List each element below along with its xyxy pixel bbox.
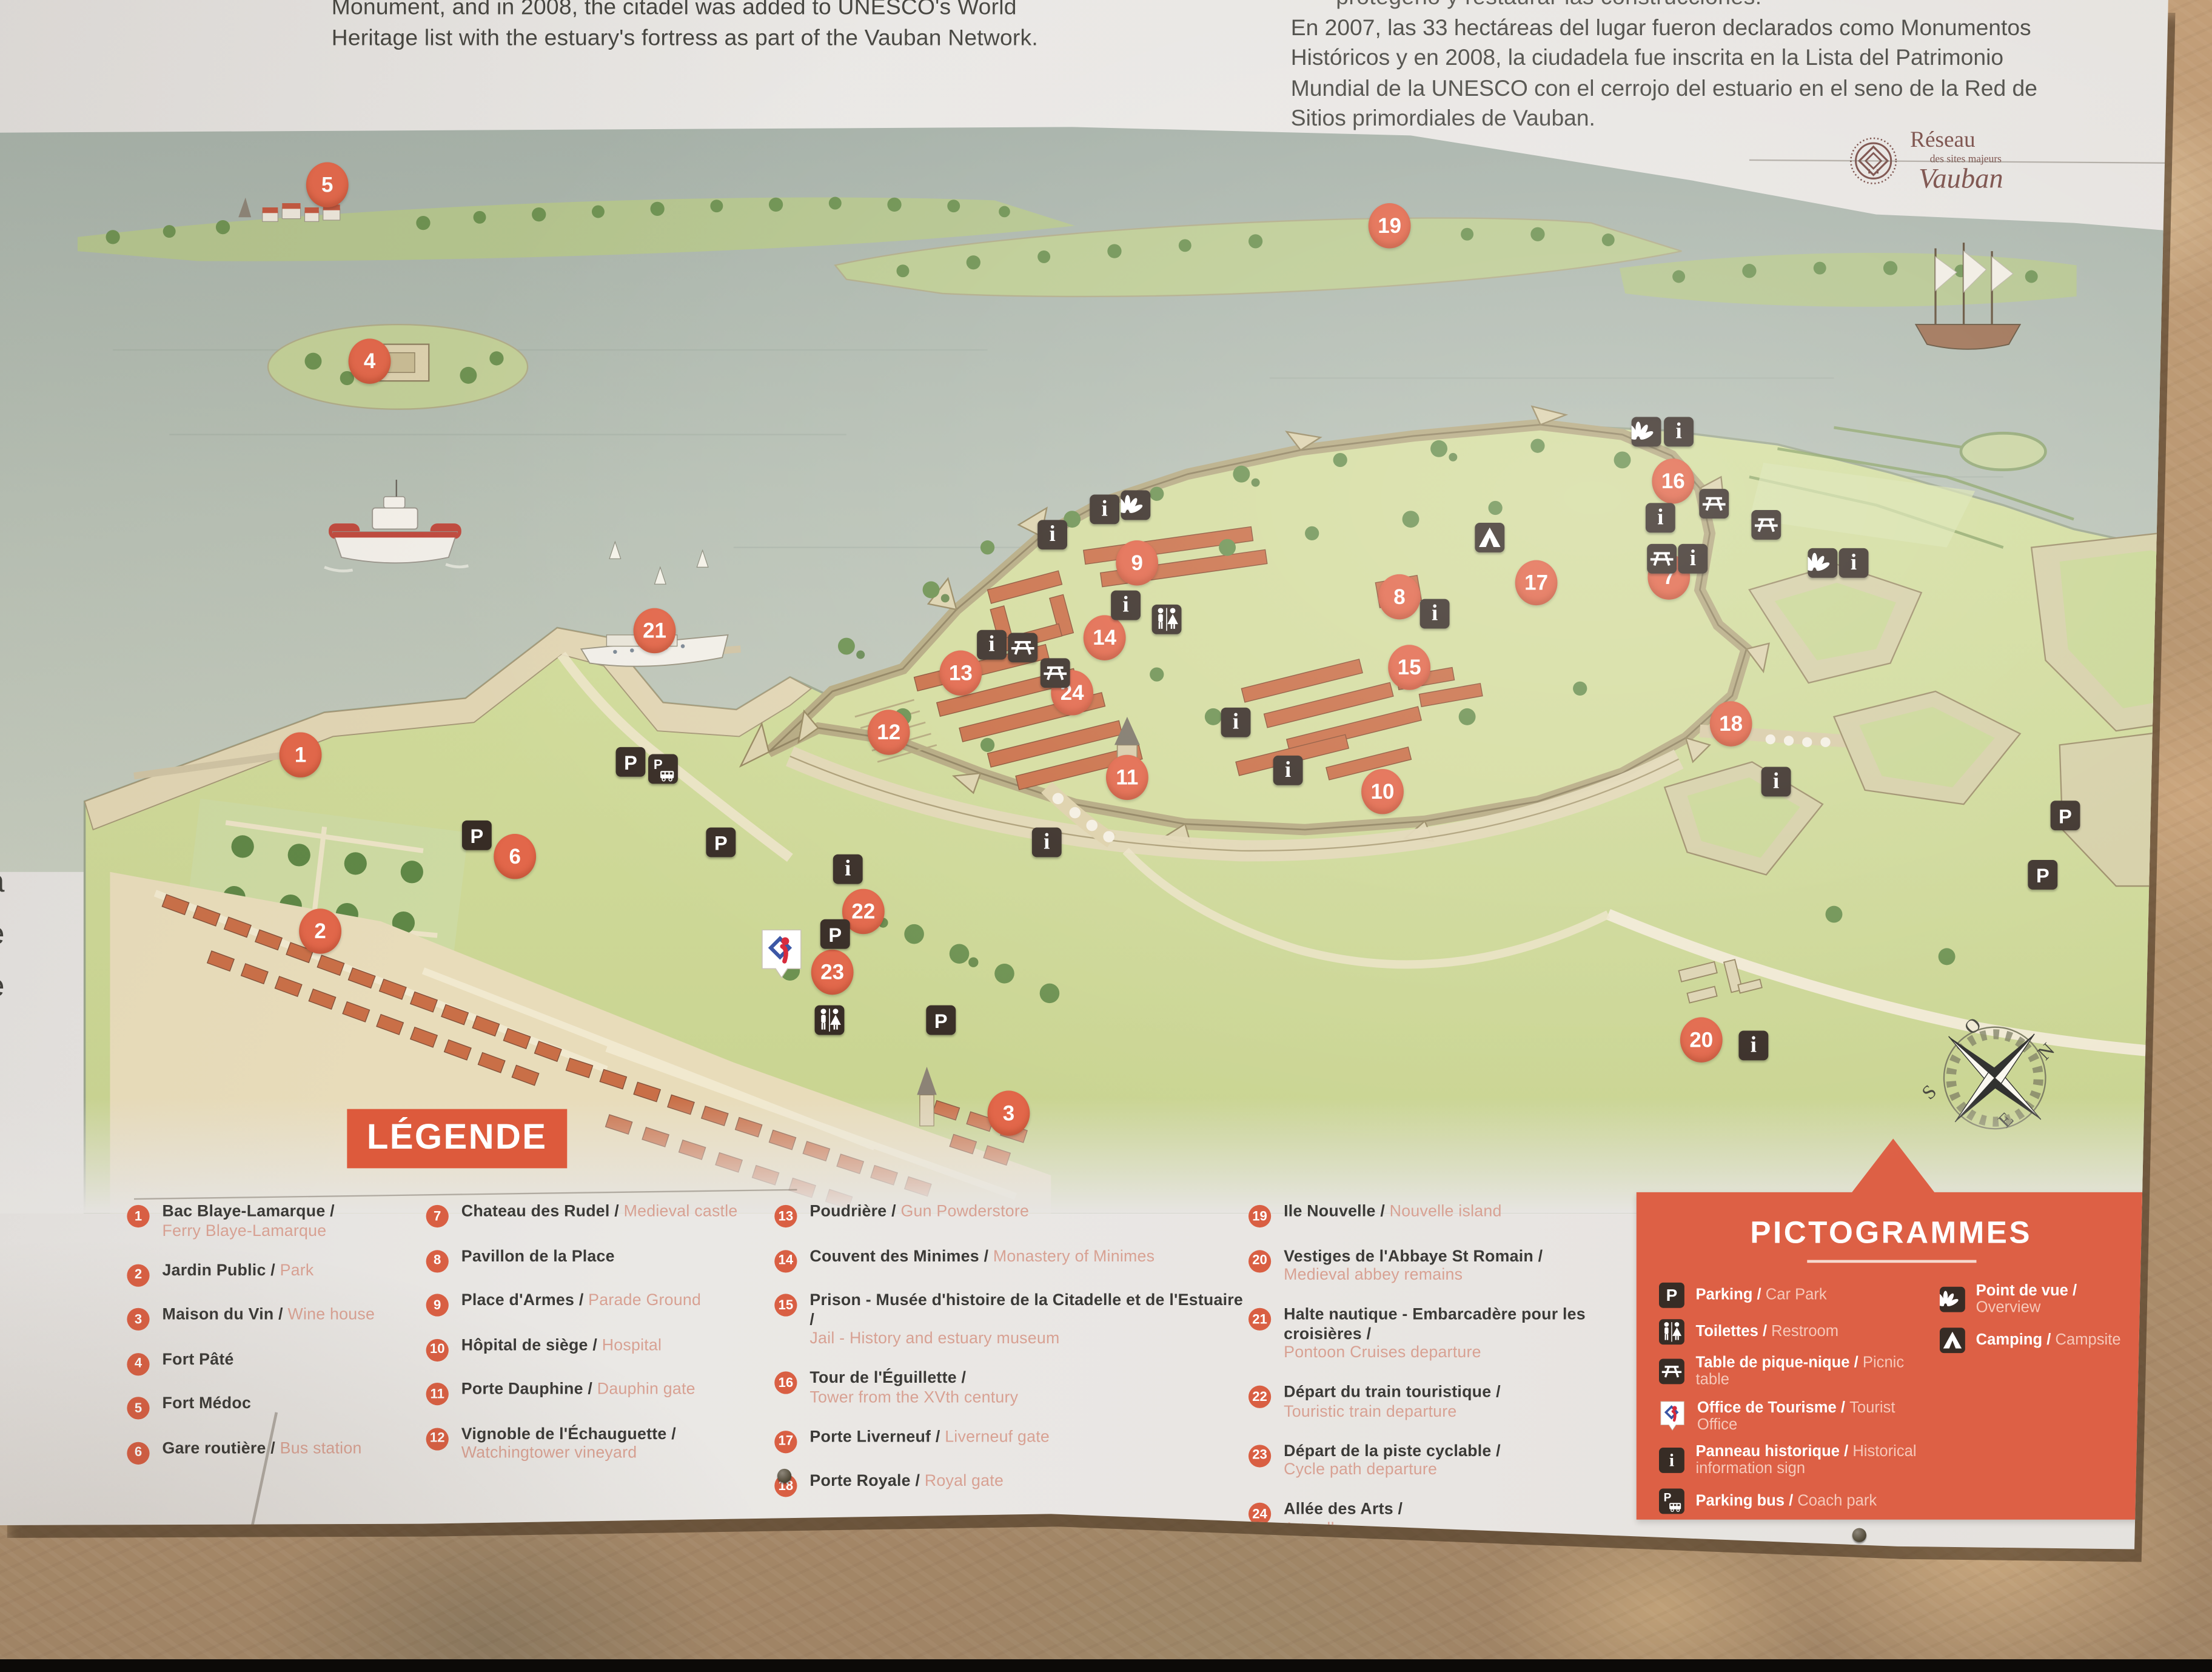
- legend-item-label: Fort Pâté: [163, 1351, 234, 1370]
- legend-item-number: 8: [426, 1249, 449, 1272]
- legend-item-label: Jardin Public / Park: [163, 1262, 314, 1281]
- pictogram-row-camping: Camping / Campsite: [1939, 1327, 2131, 1352]
- pictograms-title: PICTOGRAMMES: [1637, 1215, 2146, 1251]
- legend-item-number: 16: [774, 1371, 797, 1394]
- legend-item-23: 23Départ de la piste cyclable /Cycle pat…: [1248, 1443, 1618, 1481]
- legend-item-22: 22Départ du train touristique /Touristic…: [1248, 1384, 1618, 1422]
- legend-item-number: 7: [426, 1205, 449, 1227]
- picnic-icon: [1659, 1358, 1684, 1384]
- legend-item-19: 19Ile Nouvelle / Nouvelle island: [1248, 1204, 1618, 1228]
- legend-item-number: 15: [774, 1294, 797, 1316]
- legend-item-number: 10: [426, 1338, 449, 1361]
- legend-item-14: 14Couvent des Minimes / Monastery of Min…: [774, 1248, 1248, 1272]
- pictogram-label: Parking / Car Park: [1695, 1287, 1826, 1304]
- mounting-screw: [1852, 1528, 1866, 1542]
- photo-of-information-panel: Monument, and in 2008, the citadel was a…: [0, 0, 2212, 1659]
- legend-item-label: Poudrière / Gun Powderstore: [809, 1204, 1029, 1223]
- legend-item-number: 9: [426, 1294, 449, 1316]
- legend-item-label: Porte Liverneuf / Liverneuf gate: [809, 1429, 1050, 1448]
- pictograms-title-underline: [1806, 1260, 1976, 1263]
- fort-pate-island: [268, 324, 528, 409]
- legend-item-label: Maison du Vin / Wine house: [163, 1306, 375, 1325]
- legend-item-label: Prison - Musée d'histoire de la Citadell…: [809, 1292, 1248, 1349]
- info-icon: i: [1659, 1448, 1684, 1473]
- legend-item-number: 21: [1248, 1308, 1271, 1331]
- information-panel: Monument, and in 2008, the citadel was a…: [0, 0, 2212, 1659]
- intro-text-english: Monument, and in 2008, the citadel was a…: [332, 0, 1122, 53]
- legend-item-label: Fort Médoc: [163, 1395, 252, 1414]
- legend-item-number: 14: [774, 1249, 797, 1272]
- mounting-screw: [777, 1469, 791, 1483]
- svg-text:P: P: [1664, 1491, 1672, 1503]
- legend-item-label: Halte nautique - Embarcadère pour les cr…: [1284, 1306, 1618, 1363]
- pictogram-row-picnic: Table de pique-nique / Picnic table: [1659, 1354, 1939, 1388]
- pictogram-row-tourist-office: Office de Tourisme / Tourist Office: [1659, 1399, 1939, 1433]
- legend-item-number: 13: [774, 1205, 797, 1227]
- pictogram-label: Panneau historique / Historical informat…: [1695, 1443, 1939, 1477]
- legend-item-label: Bac Blaye-Lamarque /Ferry Blaye-Lamarque: [163, 1204, 335, 1242]
- legend-item-label: Couvent des Minimes / Monastery of Minim…: [809, 1248, 1155, 1267]
- legend-item-18: 18Porte Royale / Royal gate: [774, 1473, 1248, 1497]
- legend-item-7: 7Chateau des Rudel / Medieval castle: [426, 1204, 775, 1228]
- legend-item-label: Vestiges de l'Abbaye St Romain /Medieval…: [1284, 1248, 1543, 1286]
- legend-item-number: 19: [1248, 1205, 1271, 1227]
- intro-es-lines: En 2007, las 33 hectáreas del lugar fuer…: [1291, 13, 2102, 135]
- pictogram-label: Point de vue / Overview: [1976, 1283, 2132, 1317]
- legend-item-number: 17: [774, 1430, 797, 1452]
- intro-en-line1: Monument, and in 2008, the citadel was a…: [332, 0, 1122, 23]
- legend-item-8: 8Pavillon de la Place: [426, 1248, 775, 1272]
- legend-item-number: 5: [127, 1397, 149, 1419]
- legend-item-label: Départ de la piste cyclable /Cycle path …: [1284, 1443, 1501, 1481]
- tourist-office-icon: [1659, 1400, 1686, 1432]
- pictograms-left-column: PParking / Car ParkToilettes / RestroomT…: [1659, 1283, 1939, 1524]
- legend-item-4: 4Fort Pâté: [127, 1351, 426, 1375]
- pictogram-label: Parking bus / Coach park: [1695, 1492, 1877, 1509]
- legend-item-number: 4: [127, 1352, 149, 1375]
- legend-item-number: 6: [127, 1442, 149, 1464]
- legend-item-number: 3: [127, 1308, 149, 1331]
- camping-icon: [1939, 1327, 1965, 1352]
- legend-item-9: 9Place d'Armes / Parade Ground: [426, 1292, 775, 1317]
- legend-item-label: Place d'Armes / Parade Ground: [461, 1292, 701, 1311]
- pictograms-panel-tab: [1851, 1139, 1935, 1194]
- legend-item-label: Tour de l'Éguillette /Tower from the XVt…: [809, 1370, 1018, 1408]
- legend-item-1: 1Bac Blaye-Lamarque /Ferry Blaye-Lamarqu…: [127, 1204, 426, 1242]
- legend-item-11: 11Porte Dauphine / Dauphin gate: [426, 1382, 775, 1406]
- legend-item-17: 17Porte Liverneuf / Liverneuf gate: [774, 1429, 1248, 1453]
- pictogram-row-toilets: Toilettes / Restroom: [1659, 1318, 1939, 1344]
- intro-es-clipped-line: protegerlo y restaurar las construccione…: [1336, 0, 2102, 13]
- intro-es-line: Mundial de la UNESCO con el cerrojo del …: [1291, 74, 2102, 104]
- pictogram-label: Toilettes / Restroom: [1695, 1323, 1838, 1340]
- legend-item-20: 20Vestiges de l'Abbaye St Romain /Mediev…: [1248, 1248, 1618, 1286]
- legend-item-label: Départ du train touristique /Touristic t…: [1284, 1384, 1501, 1422]
- legend-item-15: 15Prison - Musée d'histoire de la Citade…: [774, 1292, 1248, 1349]
- legend-item-label: Pavillon de la Place: [461, 1248, 615, 1267]
- legend-title: LÉGENDE: [347, 1109, 567, 1169]
- legend-item-label: Porte Royale / Royal gate: [809, 1473, 1004, 1492]
- legend-item-label: Gare routière / Bus station: [163, 1440, 362, 1459]
- pictogram-row-parking: PParking / Car Park: [1659, 1283, 1939, 1308]
- legend-item-label: Chateau des Rudel / Medieval castle: [461, 1204, 738, 1223]
- intro-es-line: En 2007, las 33 hectáreas del lugar fuer…: [1291, 13, 2102, 44]
- intro-es-line: Históricos y en 2008, la ciudadela fue i…: [1291, 44, 2102, 74]
- legend-item-label: Porte Dauphine / Dauphin gate: [461, 1382, 695, 1400]
- legend-item-label: Vignoble de l'Échauguette /Watchingtower…: [461, 1426, 676, 1464]
- legend-item-16: 16Tour de l'Éguillette /Tower from the X…: [774, 1370, 1248, 1408]
- legend-item-2: 2Jardin Public / Park: [127, 1262, 426, 1286]
- pictogram-row-parking-bus: PParking bus / Coach park: [1659, 1488, 1939, 1513]
- pictogram-label: Table de pique-nique / Picnic table: [1695, 1354, 1939, 1388]
- legend-item-label: Ile Nouvelle / Nouvelle island: [1284, 1204, 1501, 1223]
- legend-item-12: 12Vignoble de l'Échauguette /Watchingtow…: [426, 1426, 775, 1464]
- parking-icon: P: [1659, 1283, 1684, 1308]
- legend-item-13: 13Poudrière / Gun Powderstore: [774, 1204, 1248, 1228]
- legend-item-number: 2: [127, 1263, 149, 1286]
- legend-item-5: 5Fort Médoc: [127, 1395, 426, 1420]
- legend-item-number: 20: [1248, 1249, 1271, 1272]
- pictogram-row-viewpoint: Point de vue / Overview: [1939, 1283, 2131, 1317]
- legend-title-text: LÉGENDE: [367, 1118, 547, 1157]
- legend-item-number: 11: [426, 1383, 449, 1405]
- viewpoint-icon: [1939, 1287, 1965, 1312]
- legend-item-6: 6Gare routière / Bus station: [127, 1440, 426, 1464]
- pictograms-right-column: Point de vue / OverviewCamping / Campsit…: [1939, 1283, 2131, 1524]
- parking-bus-icon: P: [1659, 1488, 1684, 1513]
- pictogram-label: Camping / Campsite: [1976, 1331, 2121, 1348]
- legend-item-3: 3Maison du Vin / Wine house: [127, 1306, 426, 1331]
- toilets-icon: [1659, 1318, 1684, 1344]
- legend-item-10: 10Hôpital de siège / Hospital: [426, 1337, 775, 1361]
- legend-item-number: 22: [1248, 1386, 1271, 1408]
- legend-item-21: 21Halte nautique - Embarcadère pour les …: [1248, 1306, 1618, 1363]
- pictogram-row-info: iPanneau historique / Historical informa…: [1659, 1443, 1939, 1477]
- intro-en-line2: Heritage list with the estuary's fortres…: [332, 23, 1122, 53]
- far-shore-right: [1620, 253, 2077, 307]
- legend-item-label: Hôpital de siège / Hospital: [461, 1337, 662, 1355]
- legend-item-number: 1: [127, 1205, 149, 1227]
- citadel-map-illustration: N O S E: [0, 124, 2212, 1214]
- pictogram-label: Office de Tourisme / Tourist Office: [1697, 1399, 1939, 1433]
- pictograms-panel: PICTOGRAMMES PParking / Car ParkToilette…: [1637, 1192, 2146, 1520]
- legend-item-number: 12: [426, 1427, 449, 1449]
- intro-text-spanish: protegerlo y restaurar las construccione…: [1291, 0, 2102, 135]
- legend-item-number: 23: [1248, 1444, 1271, 1466]
